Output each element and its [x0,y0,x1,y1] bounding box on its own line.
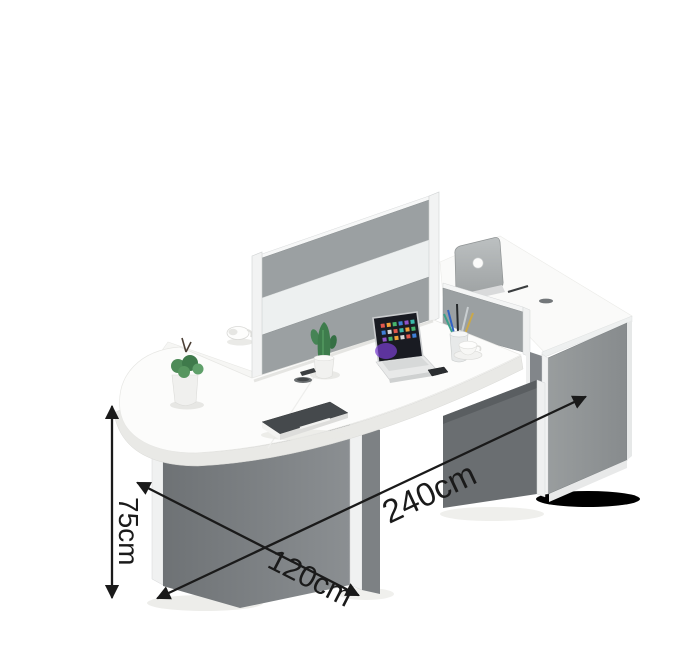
product-image: 240cm 120cm 75cm [0,0,685,666]
coffee-cup [227,327,252,340]
cable-grommet [294,377,312,383]
divider-left-post [252,252,262,386]
succulent-pot [172,375,198,406]
height-label: 75cm [113,497,144,565]
cactus-pot [314,358,334,379]
monitor-hole [473,258,483,268]
low-divider-end-post [523,307,530,357]
center-leg-panel [362,424,380,594]
workstation-scene: 240cm 120cm 75cm [0,0,685,666]
cabinet-right-trim [627,320,632,460]
cable-grommet-rear [539,299,553,304]
laptop-screen-glow [375,343,397,359]
divider-right-post [429,192,439,323]
shadow-right-leg [440,507,544,521]
right-leg-trim [537,380,545,497]
